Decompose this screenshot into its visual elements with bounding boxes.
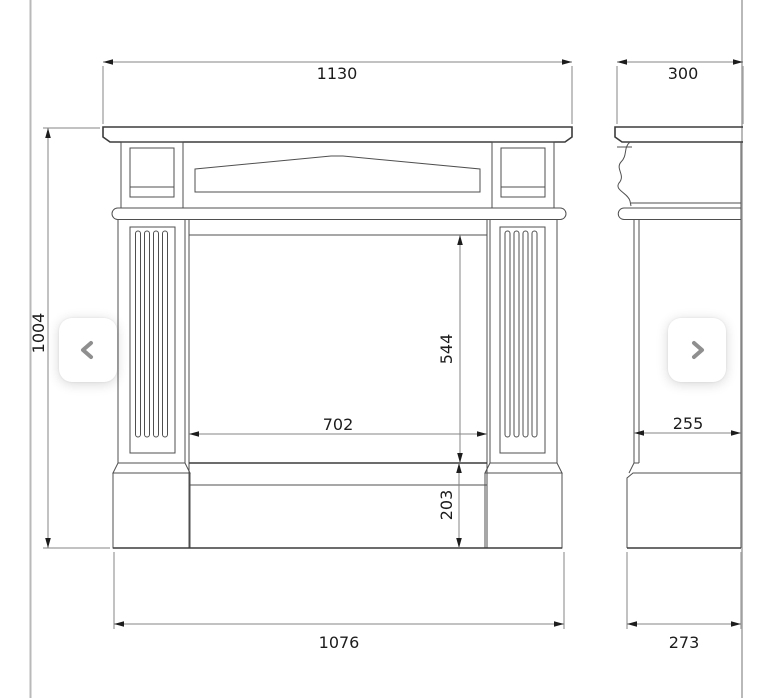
front-elevation <box>103 127 572 548</box>
dim-opening-height: 544 <box>437 235 463 463</box>
side-shelf <box>615 127 743 142</box>
viewer-frame <box>31 0 743 698</box>
left-pilaster <box>113 220 190 474</box>
frieze-right-panel <box>501 148 545 197</box>
dim-front-bottom-width: 1076 <box>114 552 564 652</box>
dim-plinth-height: 203 <box>437 463 462 548</box>
dim-label-opening-width: 702 <box>323 415 354 434</box>
chevron-left-icon <box>77 339 99 361</box>
chevron-right-icon <box>686 339 708 361</box>
frieze-left-panel <box>130 148 174 197</box>
side-frieze-scroll <box>618 142 631 206</box>
dim-label-overall-height: 1004 <box>29 313 48 354</box>
dim-side-top-depth: 300 <box>617 59 743 124</box>
flute <box>163 231 168 437</box>
dim-label-front-top-width: 1130 <box>317 64 358 83</box>
flute <box>145 231 150 437</box>
flute <box>154 231 159 437</box>
mantel-shelf <box>103 127 572 142</box>
side-molding-bar <box>618 208 741 220</box>
dim-opening-width: 702 <box>189 415 487 437</box>
left-plinth <box>113 473 190 548</box>
molding-bar <box>112 208 566 220</box>
dim-label-side-base-depth: 273 <box>669 633 700 652</box>
flute <box>136 231 141 437</box>
carousel-prev-button[interactable] <box>59 318 117 382</box>
carousel-next-button[interactable] <box>668 318 726 382</box>
dim-label-opening-height: 544 <box>437 334 456 365</box>
flute <box>514 231 519 437</box>
dim-side-base-depth: 273 <box>627 552 741 652</box>
flute <box>532 231 537 437</box>
dim-label-plinth-height: 203 <box>437 490 456 521</box>
right-pilaster <box>485 220 562 474</box>
right-plinth <box>485 473 562 548</box>
flute <box>523 231 528 437</box>
dim-label-side-top-depth: 300 <box>668 64 699 83</box>
flute <box>505 231 510 437</box>
dim-label-side-column-depth: 255 <box>673 414 704 433</box>
side-base <box>627 473 741 548</box>
frieze-center-panel <box>195 156 480 192</box>
dim-label-front-bottom-width: 1076 <box>319 633 360 652</box>
dim-side-column-depth: 255 <box>634 414 741 436</box>
dim-front-top-width: 1130 <box>103 59 572 124</box>
